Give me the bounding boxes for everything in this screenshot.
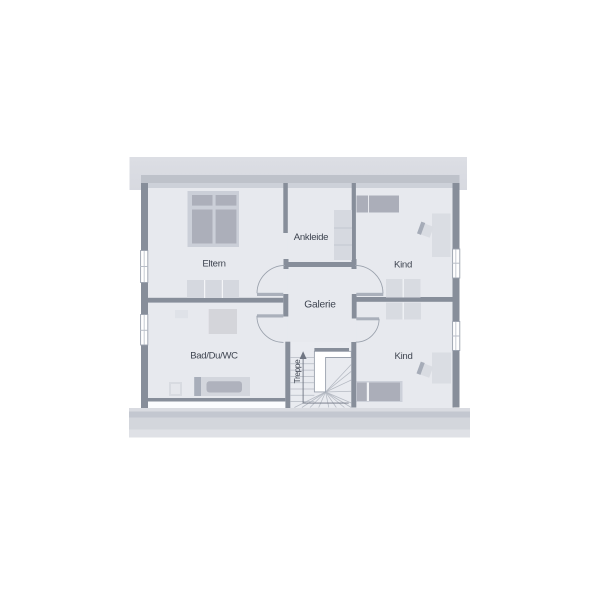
svg-text:Galerie: Galerie xyxy=(304,300,336,311)
svg-text:Eltern: Eltern xyxy=(202,259,225,270)
svg-text:Bad/Du/WC: Bad/Du/WC xyxy=(190,351,238,362)
svg-text:Ankleide: Ankleide xyxy=(294,232,328,243)
svg-text:Kind: Kind xyxy=(394,351,412,362)
svg-text:Kind: Kind xyxy=(394,260,412,271)
svg-text:Treppe: Treppe xyxy=(293,359,302,384)
